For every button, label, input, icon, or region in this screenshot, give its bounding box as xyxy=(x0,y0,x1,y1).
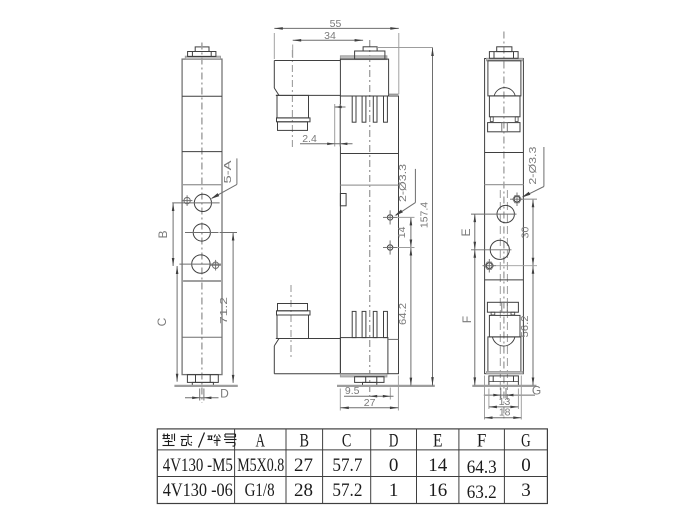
svg-text:2.4: 2.4 xyxy=(302,133,317,145)
svg-text:157.4: 157.4 xyxy=(418,202,430,228)
svg-text:E: E xyxy=(433,430,443,451)
svg-text:57.7: 57.7 xyxy=(332,455,362,476)
svg-text:5-A: 5-A xyxy=(222,161,234,184)
svg-text:F: F xyxy=(477,430,487,451)
svg-text:B: B xyxy=(156,230,170,238)
svg-text:C: C xyxy=(342,430,352,451)
svg-text:C: C xyxy=(155,317,169,326)
svg-text:G1/8: G1/8 xyxy=(245,480,275,501)
svg-text:56.2: 56.2 xyxy=(519,315,531,337)
svg-text:27: 27 xyxy=(364,397,376,409)
svg-text:64.3: 64.3 xyxy=(467,457,497,478)
svg-text:63.2: 63.2 xyxy=(467,482,497,503)
svg-text:27: 27 xyxy=(294,455,313,476)
svg-text:0: 0 xyxy=(389,455,399,476)
svg-text:34: 34 xyxy=(324,30,336,42)
svg-text:F: F xyxy=(460,316,474,323)
svg-text:9.5: 9.5 xyxy=(345,385,360,397)
svg-text:18: 18 xyxy=(499,407,511,419)
svg-text:M5X0.8: M5X0.8 xyxy=(237,455,284,476)
svg-text:16: 16 xyxy=(428,480,447,501)
svg-text:G: G xyxy=(521,430,531,451)
svg-text:D: D xyxy=(389,430,399,451)
svg-text:D: D xyxy=(220,386,229,400)
svg-text:28: 28 xyxy=(294,480,313,501)
svg-text:14: 14 xyxy=(396,226,408,238)
svg-text:30: 30 xyxy=(519,227,531,239)
svg-text:E: E xyxy=(459,228,473,236)
svg-text:55: 55 xyxy=(330,18,342,30)
svg-text:3: 3 xyxy=(521,480,531,501)
svg-text:2-Ø3.3: 2-Ø3.3 xyxy=(397,164,409,202)
svg-text:A: A xyxy=(256,430,266,451)
svg-text:71.2: 71.2 xyxy=(218,297,230,324)
svg-text:4V130 -06: 4V130 -06 xyxy=(163,480,233,501)
svg-text:57.2: 57.2 xyxy=(332,480,362,501)
svg-text:64.2: 64.2 xyxy=(397,303,409,325)
svg-text:14: 14 xyxy=(428,455,448,476)
svg-text:G: G xyxy=(532,384,541,398)
svg-text:4V130 -M5: 4V130 -M5 xyxy=(163,455,233,476)
svg-text:2-Ø3.3: 2-Ø3.3 xyxy=(527,146,539,184)
svg-text:B: B xyxy=(300,430,310,451)
svg-text:0: 0 xyxy=(521,455,531,476)
svg-text:1: 1 xyxy=(389,480,399,501)
